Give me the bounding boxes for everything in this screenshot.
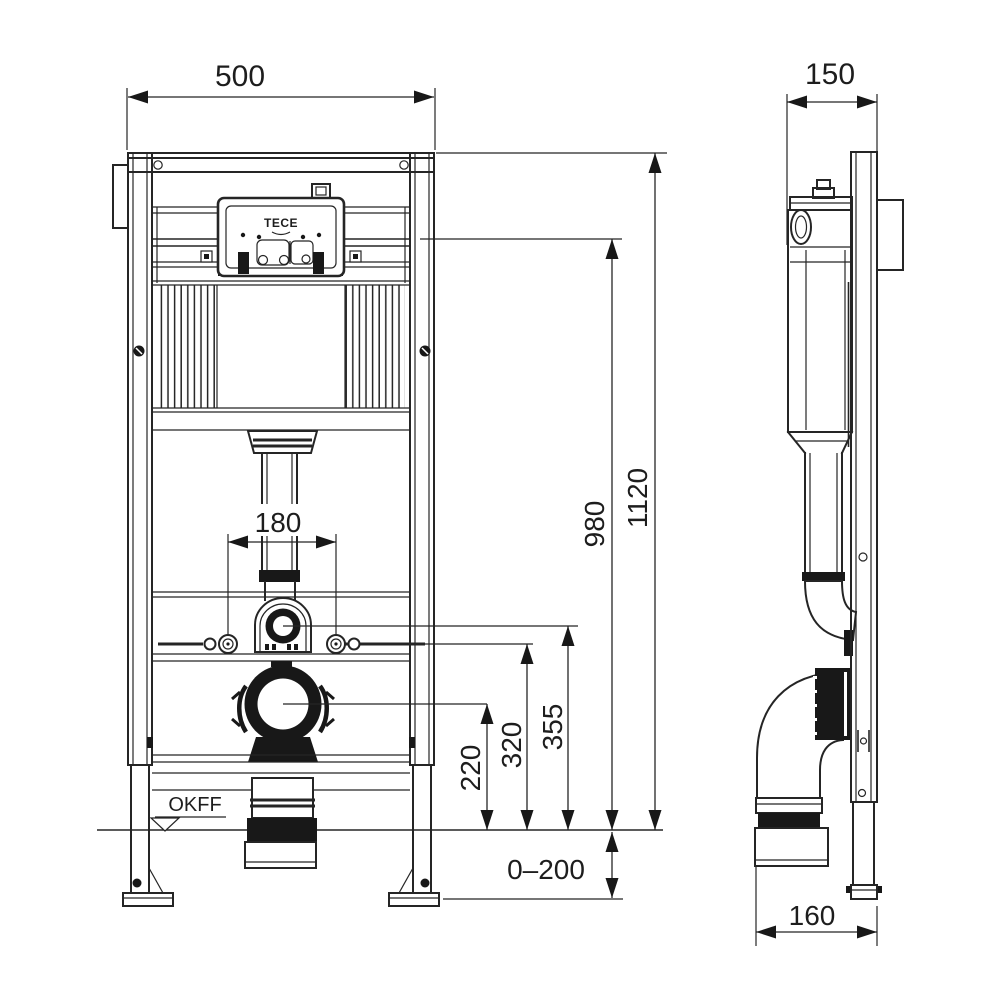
- inspection-box: TECE: [218, 184, 344, 276]
- box-foot-right: [313, 252, 324, 274]
- outlet-socket: [245, 842, 316, 868]
- dim-label-width: 500: [215, 60, 265, 93]
- foot-plate-left: [123, 893, 173, 906]
- dim-label-floor-buildup: 0–200: [507, 854, 585, 885]
- outlet-seal: [247, 818, 317, 842]
- dim-label-flush-height: 355: [537, 704, 568, 751]
- flush-pipe-seal: [802, 572, 845, 581]
- drain-outlet-stub: [245, 778, 317, 868]
- rail-clip-left: [147, 737, 153, 748]
- rib-band-left: [158, 285, 217, 408]
- pipe-joint-seal: [259, 570, 300, 582]
- leg-right: [413, 765, 431, 893]
- dim-label-outlet-height: 220: [455, 745, 486, 792]
- brand-logo: TECE: [264, 216, 298, 230]
- dim-label-bolt-height: 320: [496, 722, 527, 769]
- dim-label-total-height: 1120: [622, 468, 653, 528]
- foot-plate-right: [389, 893, 439, 906]
- washer-right: [349, 639, 360, 650]
- inspection-oval: [791, 210, 811, 244]
- dim-label-outlet-projection: 160: [789, 900, 836, 931]
- dim-label-depth: 150: [805, 58, 855, 91]
- floor-level-label: OKFF: [168, 794, 221, 816]
- outlet-pipe: [252, 778, 313, 818]
- flush-bend-cover: [248, 431, 317, 453]
- foot-tube: [853, 802, 874, 888]
- installation-frame-technical-drawing: 500: [0, 0, 1000, 1000]
- rib-band-right: [345, 285, 405, 408]
- foot-plate-side: [851, 885, 877, 899]
- washer-left: [205, 639, 216, 650]
- box-outer: [218, 198, 344, 276]
- drawing-page: 500: [0, 0, 1000, 1000]
- rail-clip-right: [409, 737, 415, 748]
- leg-left: [131, 765, 149, 893]
- dim-label-upper-height: 980: [579, 501, 610, 548]
- box-foot-left: [238, 252, 249, 274]
- socket-seal: [758, 813, 820, 828]
- dim-label-bolt-spacing: 180: [255, 507, 302, 538]
- box-tab: [312, 184, 330, 198]
- socket-collar: [756, 798, 822, 813]
